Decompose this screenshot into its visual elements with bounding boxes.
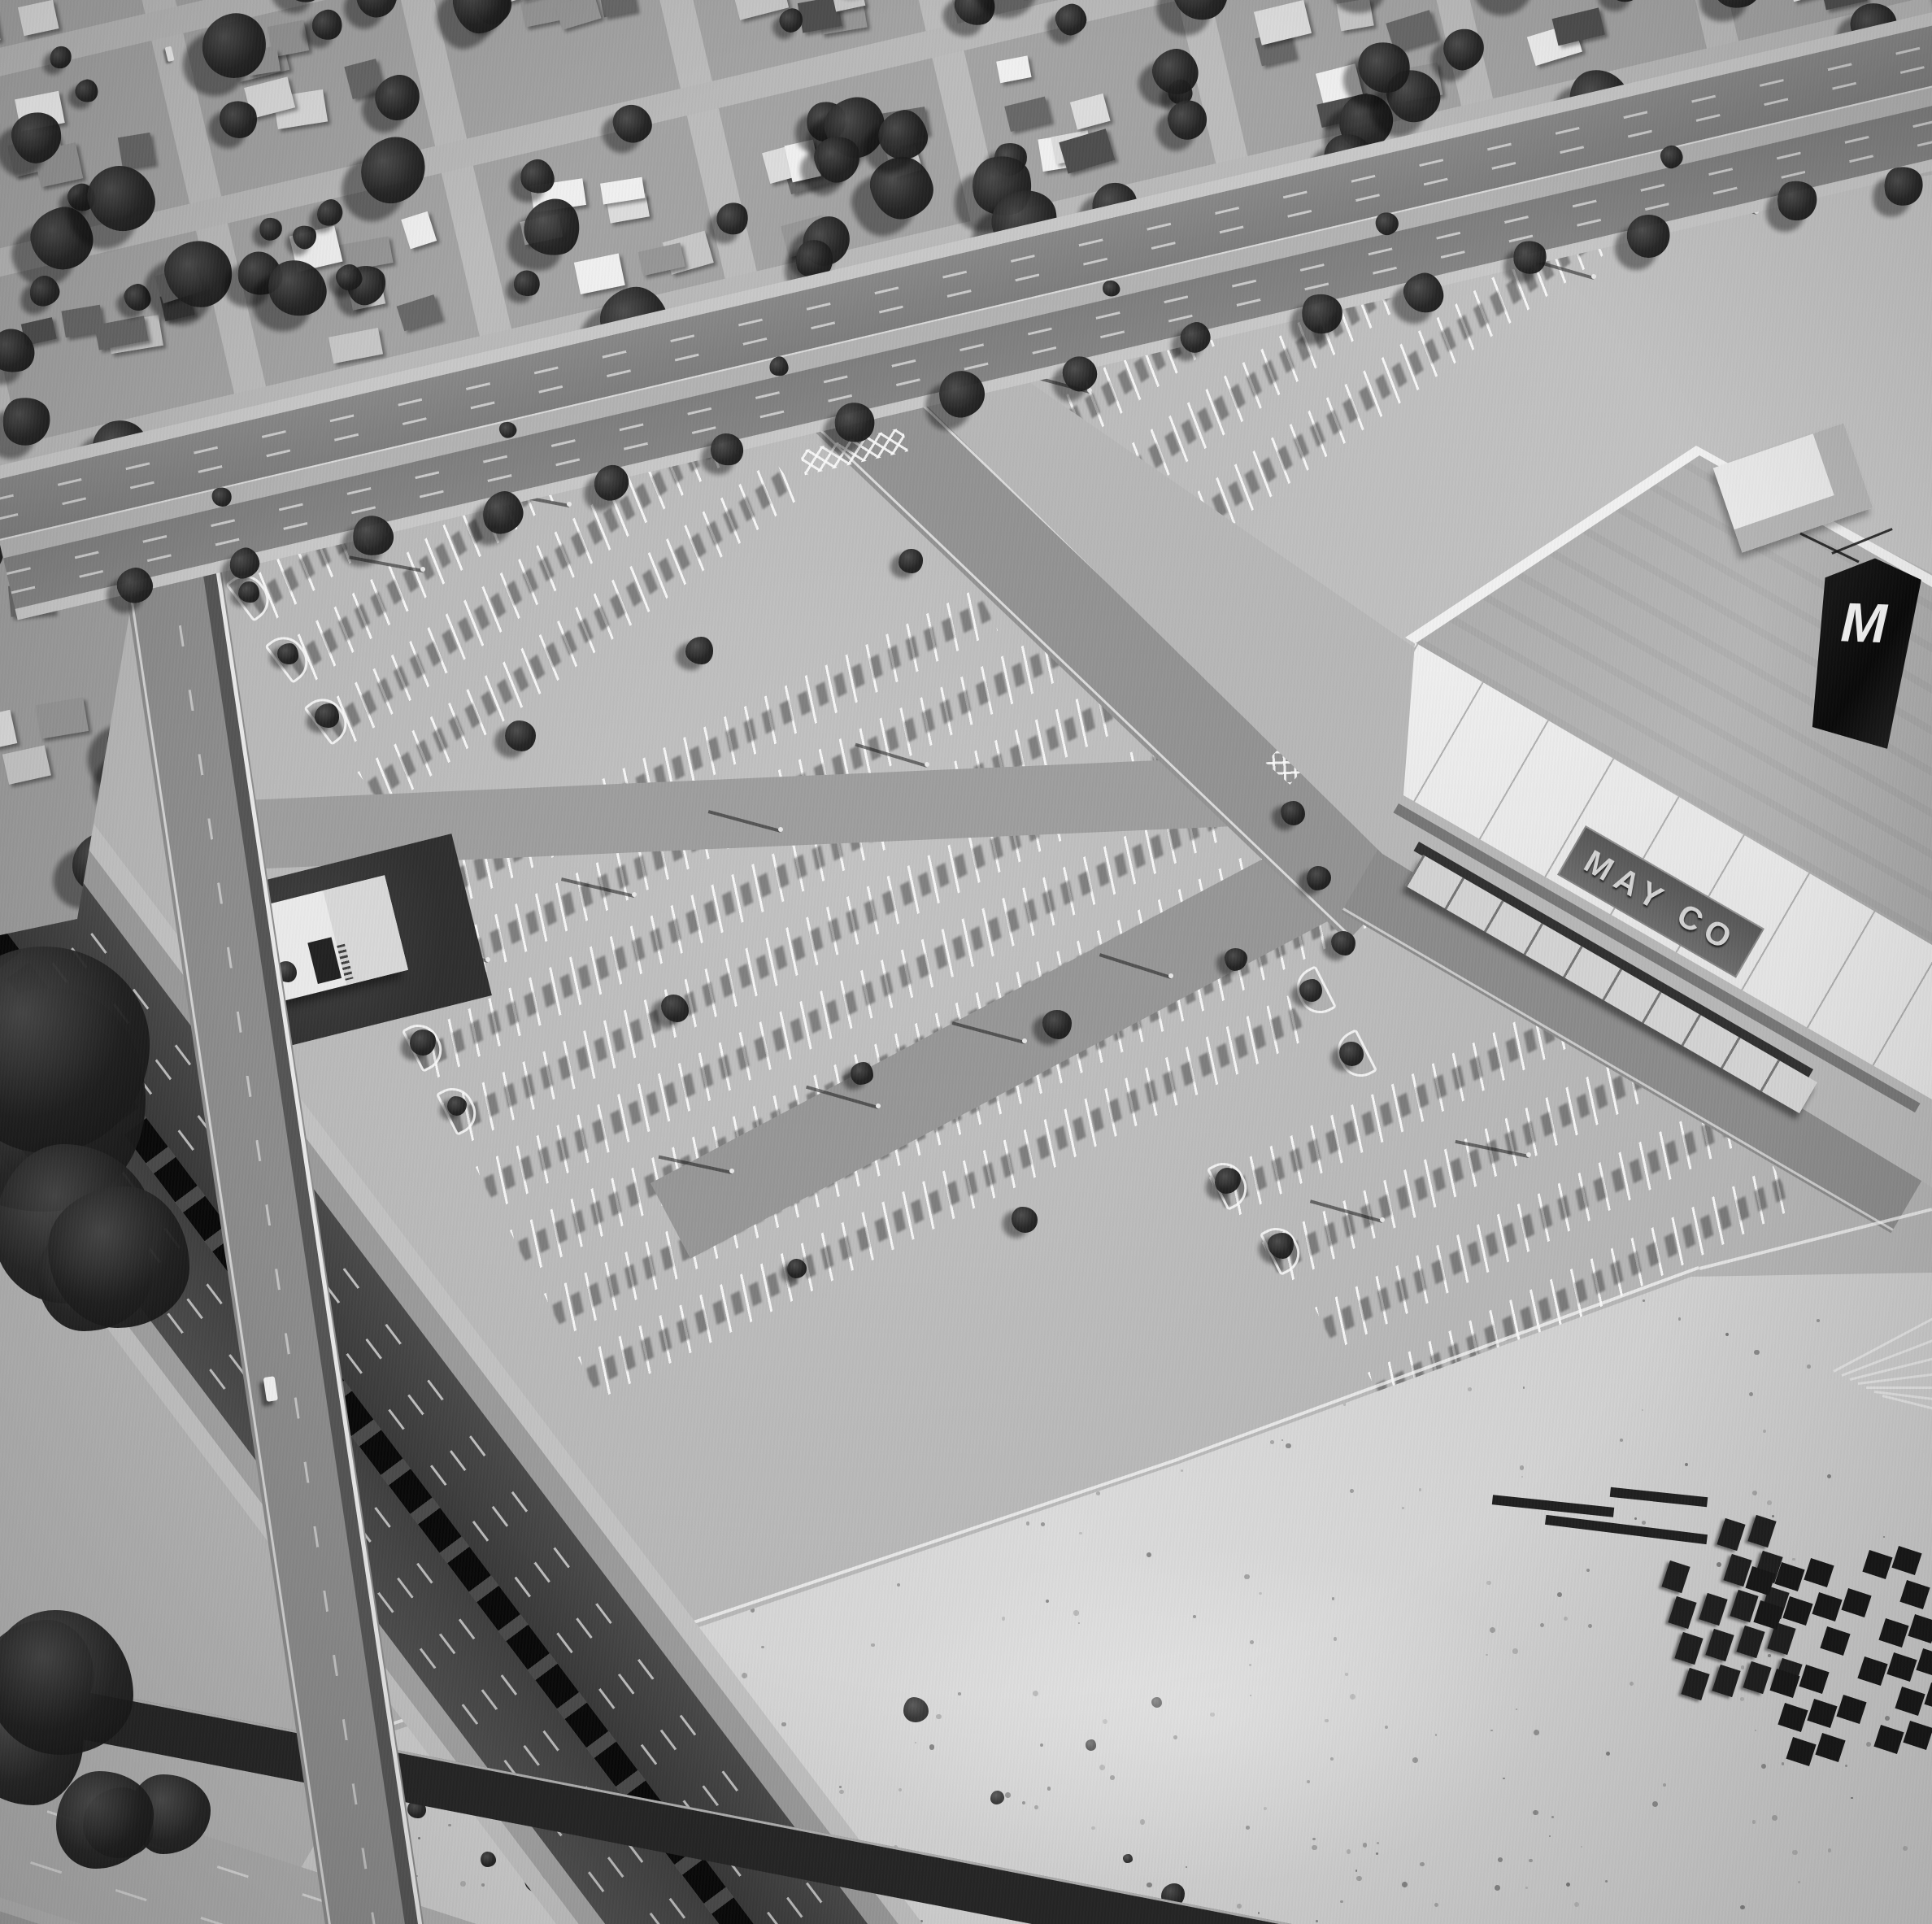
house (18, 0, 59, 37)
house (600, 0, 637, 18)
scrub-dot (1883, 1536, 1885, 1538)
material-stack (1705, 1629, 1734, 1661)
white-car (263, 1376, 278, 1402)
tree (354, 131, 432, 209)
scrub-dot (1642, 1409, 1643, 1411)
scrub-dot (1845, 1765, 1847, 1767)
scrub-dot (1557, 1592, 1563, 1598)
tree (511, 268, 542, 298)
lot-tree (1042, 1010, 1071, 1038)
scrub-dot (897, 1583, 900, 1587)
scrub-dot (272, 1712, 276, 1716)
material-stack (1903, 1721, 1932, 1750)
scrub-dot (1523, 1386, 1525, 1389)
scrub-dot (839, 1790, 843, 1794)
scrub-dot (1772, 1515, 1774, 1517)
scrub-dot (300, 1852, 305, 1857)
scrub-dot (1754, 1350, 1759, 1355)
scrub-dot (1286, 1443, 1291, 1449)
tree (1239, 623, 1278, 662)
light-streak (1882, 1395, 1932, 1428)
house (997, 56, 1032, 84)
scrub-dot (263, 1824, 265, 1826)
lamp-post (1168, 973, 1173, 978)
scrub-dot (1525, 1887, 1528, 1889)
lamp-post (1380, 1217, 1385, 1222)
material-stack (1681, 1668, 1709, 1700)
scrub-dot (1828, 1848, 1831, 1852)
material-stack (1820, 1626, 1850, 1656)
tree (1484, 0, 1557, 5)
scrub-dot (1540, 1623, 1544, 1627)
scrub-dot (1495, 1885, 1500, 1891)
scrub-dot (1725, 1333, 1729, 1336)
material-stack (1743, 1661, 1771, 1694)
house (574, 253, 625, 294)
tree (309, 7, 345, 42)
scrub-dot (1564, 1617, 1568, 1621)
material-stack (1908, 1614, 1932, 1643)
scrub-dot (1316, 1920, 1318, 1922)
lamp-post (925, 762, 929, 767)
scrub-dot (1181, 1469, 1183, 1472)
house (36, 698, 89, 739)
scrub-dot (1468, 1387, 1472, 1391)
light-streak (1866, 1386, 1932, 1389)
scrub-dot (1782, 1762, 1785, 1765)
material-stack (1841, 1588, 1871, 1617)
timber-pile (1545, 1515, 1708, 1544)
scrub-dot (1643, 1299, 1645, 1302)
scrub-dot (1551, 1816, 1554, 1818)
house (1551, 7, 1605, 46)
scrub-dot (1767, 1500, 1772, 1505)
lot-tree (899, 549, 922, 572)
tree (448, 0, 516, 38)
scrub-dot (1740, 1697, 1744, 1701)
tree (1155, 534, 1181, 560)
scrub-dot (1752, 1491, 1758, 1496)
scrub-dot (1533, 1810, 1538, 1816)
lot-tree (685, 637, 712, 664)
tree (1604, 0, 1645, 6)
scrub-dot (1079, 1532, 1081, 1534)
house (401, 211, 437, 248)
scrub-dot (1355, 1870, 1358, 1872)
tree (1214, 627, 1252, 665)
material-stack (1895, 1687, 1925, 1716)
lamp-post (1022, 1038, 1027, 1043)
tree (26, 273, 62, 309)
scrub-dot (1434, 1903, 1438, 1907)
scrub-dot (1685, 1463, 1688, 1466)
scrub-dot (1663, 1783, 1666, 1787)
lot-tree (1012, 1207, 1037, 1232)
scrub-dot (1041, 1522, 1045, 1526)
scrub-dot (460, 1881, 466, 1887)
scrub-dot (1761, 1764, 1766, 1769)
tree (72, 77, 100, 105)
scrub-dot (1755, 1730, 1756, 1731)
material-stack (1916, 1648, 1932, 1678)
lot-tree (851, 1062, 873, 1085)
tree (864, 150, 939, 225)
scrub-dot (1420, 1862, 1425, 1867)
material-stack (1891, 1546, 1921, 1575)
house (1336, 0, 1373, 31)
scrub-dot (1606, 1752, 1610, 1756)
lamp-post (778, 827, 783, 832)
scrub-dot (1549, 1835, 1551, 1837)
material-stack (1712, 1665, 1740, 1697)
department-store-building: MAY CO M (1342, 366, 1932, 1179)
palm-tree (1281, 801, 1305, 825)
scrub-dot (1768, 1654, 1771, 1657)
scrub-dot (839, 1786, 842, 1788)
lot-tree (505, 720, 536, 751)
house (1070, 93, 1111, 129)
pylon-letter: M (1840, 590, 1888, 655)
material-stack (1924, 1682, 1932, 1712)
material-stack (1862, 1550, 1892, 1579)
house (118, 133, 154, 168)
material-stack (1815, 1733, 1845, 1762)
lamp-post (420, 567, 425, 572)
house (0, 710, 17, 750)
material-stack (1873, 1725, 1904, 1754)
scrub-dot (1566, 1883, 1570, 1887)
timber-pile (1610, 1487, 1708, 1507)
island-tree (238, 581, 259, 602)
material-stack (1878, 1618, 1908, 1648)
house (1004, 97, 1051, 132)
scrub-dot (1574, 1902, 1580, 1908)
scrub-dot (1258, 1912, 1260, 1913)
scrub-dot (1402, 1882, 1408, 1887)
house (555, 0, 601, 30)
scrub-dot (1498, 1857, 1503, 1862)
lamp-post (632, 892, 637, 897)
house (1221, 599, 1260, 639)
scrub-dot (1807, 1365, 1810, 1368)
scrub-dot (871, 1643, 874, 1647)
scrub-dot (1792, 1558, 1795, 1561)
scrub-dot (1885, 1716, 1890, 1721)
scrub-dot (1620, 1439, 1623, 1442)
scrub-dot (1402, 1507, 1404, 1509)
scrub-dot (742, 1673, 747, 1678)
scrub-dot (1798, 1881, 1800, 1883)
scrub-dot (1026, 1521, 1029, 1525)
scrub-dot (1792, 1850, 1797, 1855)
dirt-mound (854, 1545, 1545, 1887)
scrub-dot (1281, 1439, 1283, 1441)
material-stack (1699, 1593, 1727, 1626)
scrub-dot (1581, 1846, 1582, 1848)
lamp-post (876, 1103, 881, 1108)
scrub-dot (1419, 1488, 1421, 1491)
lamp-post (1591, 274, 1596, 279)
material-stack (1807, 1699, 1837, 1728)
island-tree (410, 1029, 435, 1055)
material-stack (1799, 1665, 1829, 1694)
scrub-dot (1772, 1815, 1778, 1821)
island-tree (277, 643, 298, 664)
material-stack (1736, 1626, 1764, 1658)
lamp-post (567, 502, 572, 507)
scrub-dot (1866, 1742, 1871, 1747)
scrub-dot (1350, 1489, 1354, 1493)
tree (257, 215, 285, 243)
scrub-dot (761, 1646, 764, 1648)
material-stack (1782, 1596, 1812, 1626)
scrub-dot (781, 1722, 785, 1726)
scrub-dot (1749, 1392, 1753, 1396)
material-stack (1886, 1652, 1917, 1682)
island-tree (315, 703, 338, 727)
house (329, 328, 383, 363)
material-stack (1836, 1695, 1866, 1724)
tree (352, 0, 402, 21)
material-stack (1668, 1596, 1696, 1629)
material-stack (1674, 1632, 1703, 1665)
island-tree (1299, 979, 1322, 1002)
scrub-dot (1752, 1820, 1756, 1823)
scrub-dot (1827, 1474, 1831, 1478)
house (1254, 0, 1312, 46)
material-stack (1804, 1558, 1834, 1587)
scrub-dot (1634, 1517, 1637, 1520)
material-stack (1747, 1515, 1776, 1547)
material-stack (1786, 1737, 1816, 1766)
scrub-dot (1529, 1859, 1533, 1863)
scrub-dot (448, 1824, 450, 1826)
scrub-dot (1520, 1465, 1524, 1469)
material-stack (1661, 1561, 1690, 1593)
scrub-dot (1741, 1665, 1745, 1669)
lamp-post (729, 1169, 734, 1173)
scrub-dot (285, 1846, 290, 1851)
scrub-dot (1340, 1900, 1343, 1904)
scrub-dot (1851, 1797, 1852, 1799)
scrub-dot (1237, 1904, 1242, 1909)
scrub-dot (1630, 1682, 1634, 1686)
tree (1055, 464, 1099, 508)
material-stack (1857, 1656, 1887, 1686)
tree (1002, 390, 1027, 416)
house (2, 745, 51, 784)
scrub-dot (481, 1883, 485, 1887)
tree (121, 281, 153, 313)
lamp-post (485, 957, 490, 962)
scrub-dot (1586, 1569, 1590, 1572)
scrub-dot (1717, 1562, 1721, 1567)
material-stack (1717, 1518, 1745, 1551)
scrub-dot (1678, 1317, 1681, 1320)
material-stack (1812, 1592, 1842, 1621)
timber-pile (1492, 1495, 1614, 1517)
material-stack (1899, 1580, 1930, 1609)
scrub-dot (418, 1837, 421, 1840)
scrub-dot (1521, 1476, 1523, 1478)
scrub-dot (1605, 1880, 1608, 1883)
aerial-photo: MAY CO M (0, 0, 1932, 1924)
scrub-dot (1740, 1905, 1745, 1910)
tree (1194, 523, 1225, 553)
scrub-dot (1763, 1430, 1767, 1434)
scrub-dot (1817, 1319, 1820, 1322)
scrub-dot (1486, 1581, 1491, 1586)
scrub-dot (1588, 1624, 1592, 1628)
scrub-dot (1652, 1801, 1658, 1807)
scrub-dot (1356, 1876, 1361, 1881)
scrub-dot (1270, 1440, 1274, 1444)
house (397, 294, 442, 331)
scrub-dot (1642, 1521, 1646, 1525)
scrub-bush (481, 1852, 496, 1867)
material-stack (1778, 1703, 1808, 1732)
scrub-dot (1903, 1846, 1908, 1851)
